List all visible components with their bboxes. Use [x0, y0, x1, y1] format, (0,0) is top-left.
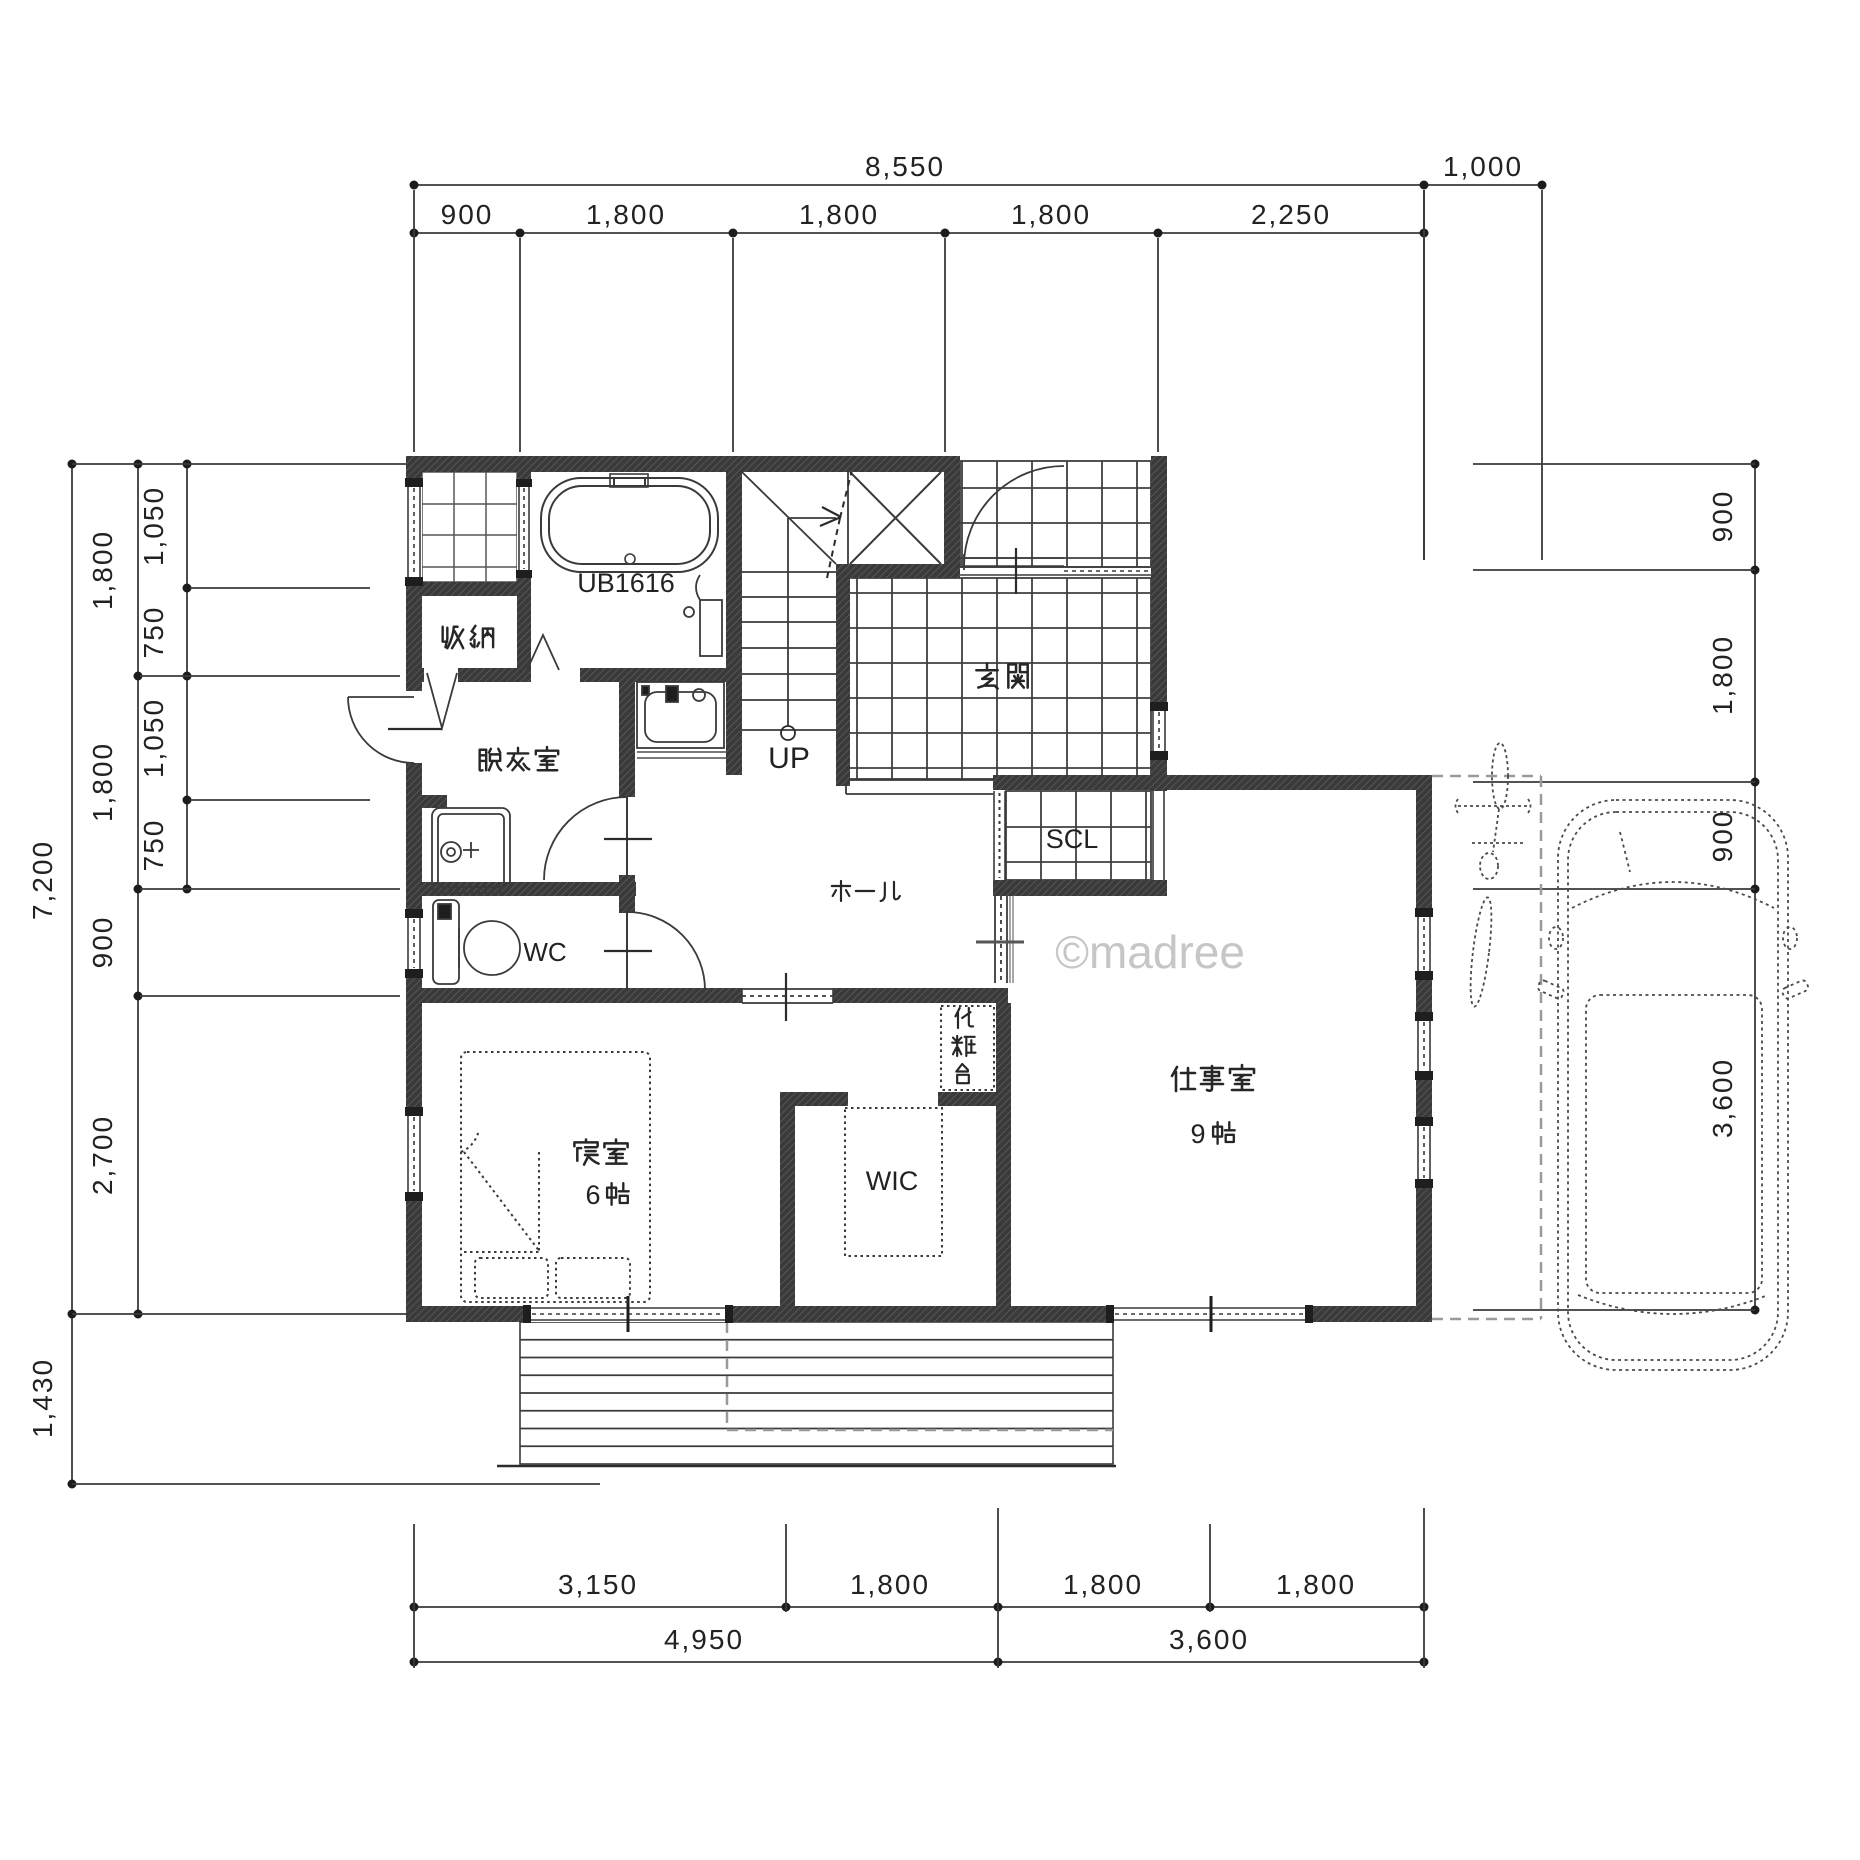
svg-text:8,550: 8,550: [865, 151, 945, 182]
svg-text:7,200: 7,200: [27, 840, 58, 920]
svg-text:SCL: SCL: [1046, 824, 1099, 854]
svg-text:3,600: 3,600: [1707, 1058, 1738, 1138]
svg-text:1,430: 1,430: [27, 1358, 58, 1438]
svg-text:1,800: 1,800: [87, 742, 118, 822]
svg-text:UB1616: UB1616: [577, 568, 675, 598]
svg-text:UP: UP: [768, 742, 810, 775]
svg-text:1,800: 1,800: [1011, 199, 1091, 230]
svg-text:4,950: 4,950: [664, 1624, 744, 1655]
svg-text:1,800: 1,800: [586, 199, 666, 230]
svg-text:750: 750: [138, 606, 169, 659]
svg-text:3,150: 3,150: [558, 1569, 638, 1600]
svg-text:1,050: 1,050: [138, 698, 169, 778]
svg-text:900: 900: [1707, 490, 1738, 543]
svg-text:900: 900: [1707, 810, 1738, 863]
svg-text:750: 750: [138, 819, 169, 872]
svg-text:1,000: 1,000: [1443, 151, 1523, 182]
svg-text:WIC: WIC: [866, 1166, 918, 1196]
svg-text:2,250: 2,250: [1251, 199, 1331, 230]
svg-text:1,800: 1,800: [799, 199, 879, 230]
svg-text:900: 900: [87, 916, 118, 969]
svg-text:1,800: 1,800: [850, 1569, 930, 1600]
svg-text:1,800: 1,800: [1276, 1569, 1356, 1600]
svg-text:1,800: 1,800: [87, 530, 118, 610]
svg-text:3,600: 3,600: [1169, 1624, 1249, 1655]
svg-text:900: 900: [441, 199, 494, 230]
svg-text:1,800: 1,800: [1063, 1569, 1143, 1600]
svg-text:©madree: ©madree: [1055, 926, 1245, 978]
svg-text:1,800: 1,800: [1707, 635, 1738, 715]
svg-text:9: 9: [1190, 1119, 1205, 1149]
svg-text:1,050: 1,050: [138, 486, 169, 566]
svg-text:2,700: 2,700: [87, 1115, 118, 1195]
svg-text:6: 6: [585, 1180, 600, 1210]
svg-text:WC: WC: [523, 937, 566, 967]
